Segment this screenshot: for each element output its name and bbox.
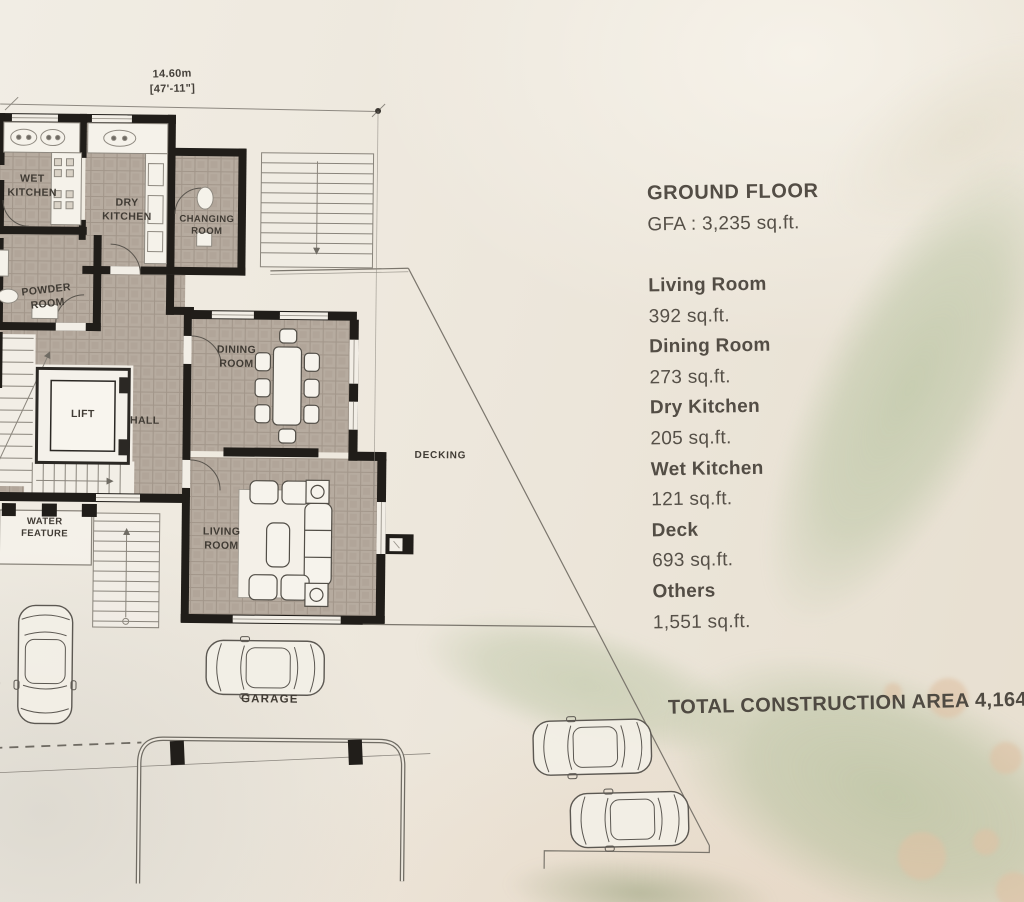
dimension-imperial: [47'-11"] [150,81,196,97]
cars [12,605,691,853]
gfa-value: GFA : 3,235 sq.ft. [647,210,987,237]
room-area-value: 273 sq.ft. [649,358,989,393]
label-changing-room: CHANGING ROOM [179,214,234,239]
room-area-value: 1,551 sq.ft. [653,603,993,638]
room-area-value: 693 sq.ft. [652,542,992,577]
label-powder-room: POWDER ROOM [21,281,73,314]
label-water-feature: WATER FEATURE [21,516,68,541]
room-area-item: Deck 693 sq.ft. [651,511,992,577]
dimension-label: 14.60m [47'-11"] [149,66,195,97]
ground-floor-title: GROUND FLOOR [647,178,987,206]
dimension-metric: 14.60m [149,66,195,82]
floor-plan-page: WET KITCHEN DRY KITCHEN CHANGING ROOM PO… [0,0,1024,902]
room-area-list: Living Room 392 sq.ft. Dining Room 273 s… [648,267,993,639]
label-dry-kitchen: DRY KITCHEN [102,196,152,224]
room-area-label: Living Room [648,267,988,302]
room-area-label: Deck [651,511,991,546]
label-living-room: LIVING ROOM [203,526,241,554]
room-area-label: Others [652,573,992,608]
room-area-item: Wet Kitchen 121 sq.ft. [651,450,992,516]
room-area-item: Dry Kitchen 205 sq.ft. [650,389,991,455]
room-area-item: Living Room 392 sq.ft. [648,267,989,333]
label-lift: LIFT [71,408,95,422]
room-area-value: 205 sq.ft. [650,420,990,455]
label-garage: GARAGE [241,692,299,708]
room-area-label: Dry Kitchen [650,389,990,424]
room-area-label: Dining Room [649,328,989,363]
room-area-value: 392 sq.ft. [649,297,989,332]
label-decking: DECKING [415,449,467,463]
area-summary-panel: GROUND FLOOR GFA : 3,235 sq.ft. Living R… [647,178,993,639]
room-area-label: Wet Kitchen [651,450,991,485]
room-area-item: Dining Room 273 sq.ft. [649,328,990,394]
label-hall: HALL [130,415,160,429]
label-dining-room: DINING ROOM [217,344,256,372]
room-area-item: Others 1,551 sq.ft. [652,573,993,639]
label-wet-kitchen: WET KITCHEN [7,172,57,200]
room-area-value: 121 sq.ft. [651,481,991,516]
